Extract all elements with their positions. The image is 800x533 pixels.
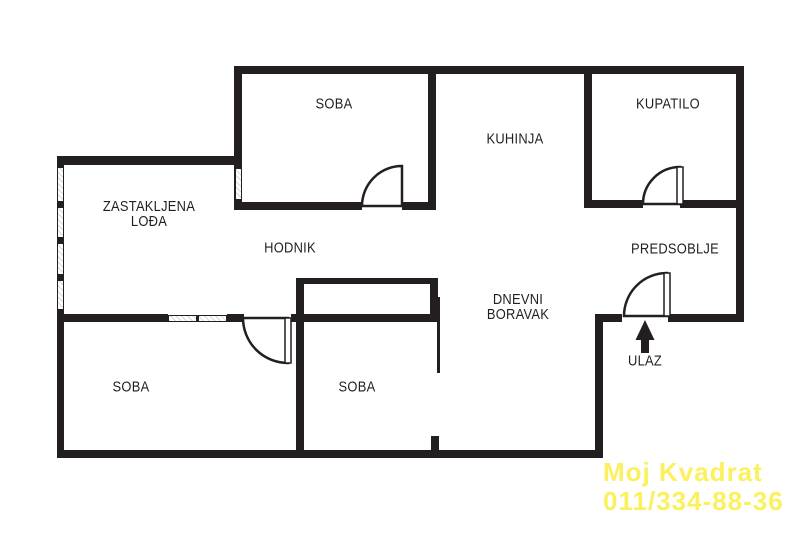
door-arc-entry	[624, 273, 667, 316]
door-arc-soba-bottom-left	[243, 318, 288, 363]
label-dnevni-boravak: DNEVNI BORAVAK	[487, 292, 549, 322]
label-soba-bottom-middle-text: SOBA	[339, 380, 376, 395]
door-arc-kupatilo	[643, 167, 680, 204]
label-predsoblje-text: PREDSOBLJE	[631, 242, 719, 257]
label-zastakljena-lodja: ZASTAKLJENA LOĐA	[103, 199, 195, 229]
label-kupatilo: KUPATILO	[636, 97, 700, 112]
label-kuhinja-text: KUHINJA	[486, 132, 543, 147]
entrance-arrow-icon	[636, 320, 655, 353]
label-predsoblje: PREDSOBLJE	[631, 242, 719, 257]
floor-plan: SOBA KUHINJA KUPATILO ZASTAKLJENA LOĐA H…	[0, 0, 800, 533]
label-hodnik-text: HODNIK	[264, 241, 316, 256]
label-hodnik: HODNIK	[264, 241, 316, 256]
label-soba-bottom-left-text: SOBA	[113, 380, 150, 395]
label-zastakljena-lodja-line2: LOĐA	[103, 214, 195, 229]
label-dnevni-boravak-line2: BORAVAK	[487, 307, 549, 322]
watermark-phone: 011/334-88-36	[603, 487, 784, 516]
watermark-brand: Moj Kvadrat	[603, 458, 784, 487]
label-soba-top: SOBA	[316, 97, 353, 112]
label-soba-top-text: SOBA	[316, 97, 353, 112]
label-kupatilo-text: KUPATILO	[636, 97, 700, 112]
door-leaf-kupatilo	[677, 167, 683, 204]
doors-overlay	[0, 0, 800, 533]
label-zastakljena-lodja-line1: ZASTAKLJENA	[103, 199, 195, 214]
door-leaf-entry	[664, 273, 670, 316]
label-kuhinja: KUHINJA	[486, 132, 543, 147]
door-arc-soba-top	[362, 166, 402, 206]
door-leaf-soba-bottom-left	[285, 318, 291, 363]
watermark: Moj Kvadrat 011/334-88-36	[603, 458, 784, 516]
label-ulaz-text: ULAZ	[628, 354, 662, 369]
label-ulaz: ULAZ	[628, 354, 662, 369]
label-dnevni-boravak-line1: DNEVNI	[487, 292, 549, 307]
label-soba-bottom-left: SOBA	[113, 380, 150, 395]
label-soba-bottom-middle: SOBA	[339, 380, 376, 395]
